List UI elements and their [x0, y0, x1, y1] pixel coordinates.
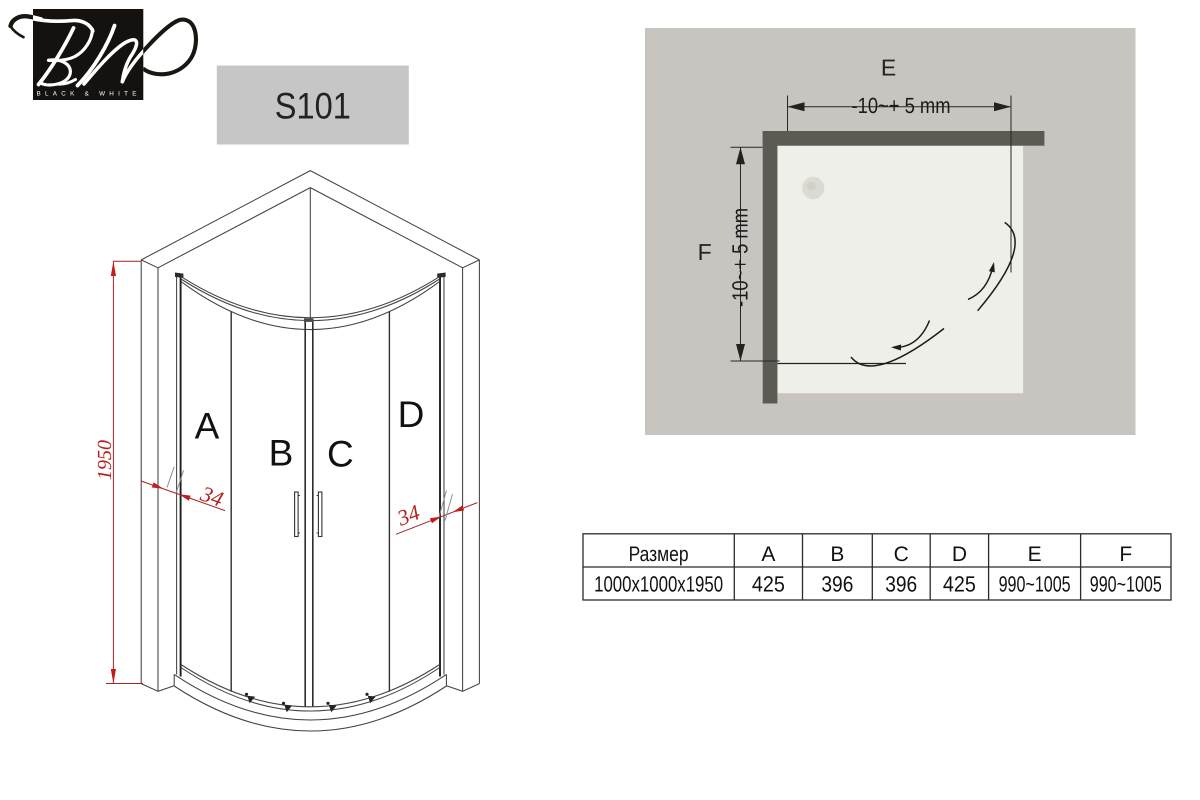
svg-text:C: C — [894, 543, 909, 566]
svg-text:Размер: Размер — [629, 543, 689, 566]
svg-text:A: A — [761, 543, 775, 566]
svg-text:1950: 1950 — [94, 440, 116, 480]
svg-text:990~1005: 990~1005 — [1090, 571, 1162, 596]
svg-text:F: F — [698, 239, 712, 265]
svg-text:-10~+ 5 mm: -10~+ 5 mm — [728, 208, 753, 307]
svg-text:F: F — [1119, 543, 1132, 566]
svg-text:E: E — [1028, 543, 1042, 566]
svg-text:E: E — [881, 55, 896, 81]
svg-text:C: C — [327, 433, 354, 474]
svg-text:S101: S101 — [275, 86, 351, 127]
svg-text:A: A — [195, 406, 220, 447]
svg-text:-10~+ 5 mm: -10~+ 5 mm — [852, 93, 951, 118]
svg-text:B: B — [830, 543, 844, 566]
svg-text:425: 425 — [943, 571, 976, 596]
svg-text:BLACK & WHITE: BLACK & WHITE — [37, 91, 140, 98]
svg-text:396: 396 — [885, 571, 917, 596]
svg-text:1000x1000x1950: 1000x1000x1950 — [594, 571, 723, 596]
svg-text:396: 396 — [821, 571, 853, 596]
svg-text:B: B — [269, 433, 294, 474]
svg-text:990~1005: 990~1005 — [999, 571, 1071, 596]
svg-text:D: D — [952, 543, 967, 566]
svg-text:425: 425 — [752, 571, 785, 596]
svg-text:D: D — [398, 394, 425, 435]
